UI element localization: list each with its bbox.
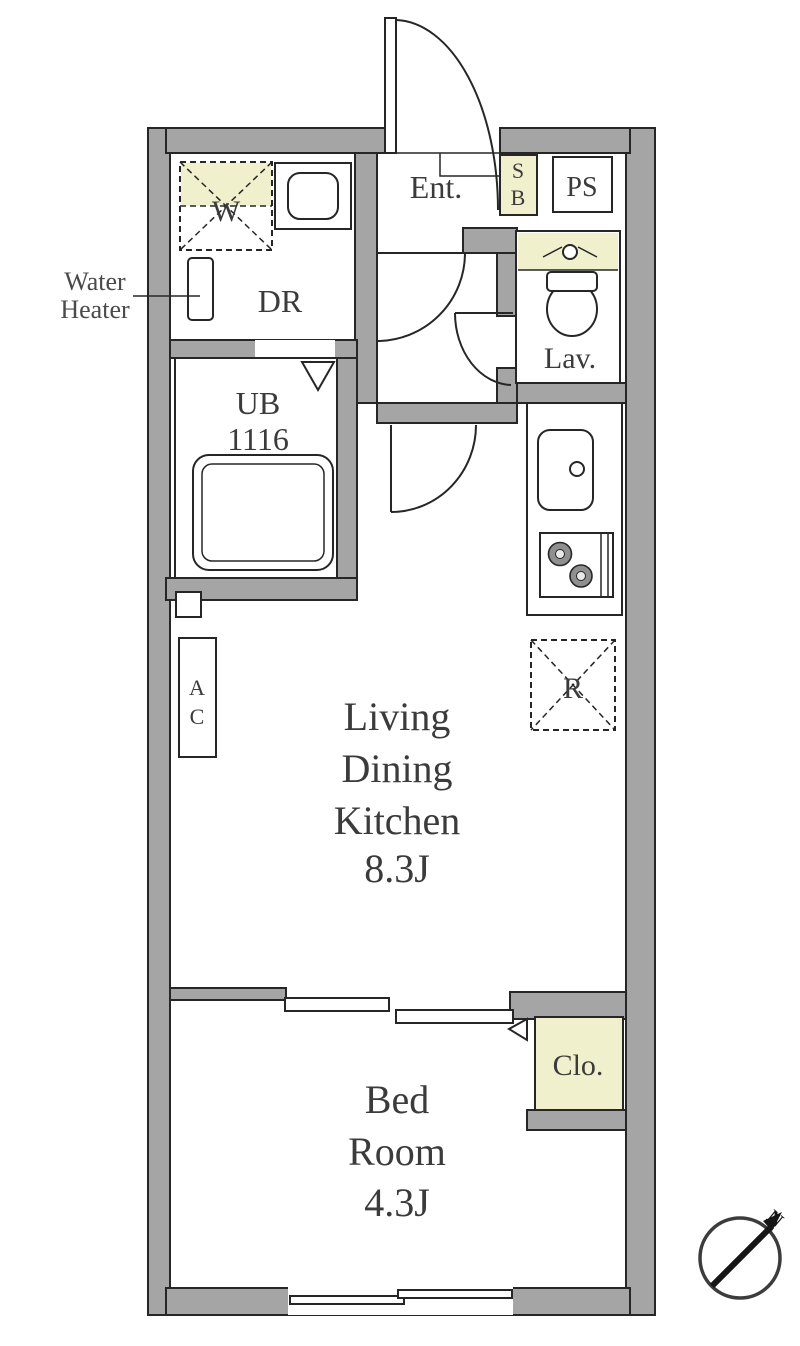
closet-top-wall [510, 992, 626, 1019]
floor-plan-drawing: Ent. S B PS W DR Water Heater UB 1116 [0, 0, 800, 1346]
closet-bottom-wall [527, 1110, 626, 1130]
ldk-door [391, 425, 476, 512]
water-heater-unit [188, 258, 213, 320]
washing-machine-label: W [212, 195, 241, 228]
ldk-label-line2: Dining [341, 746, 452, 791]
lav-wall-upper [497, 253, 517, 316]
compass-needle [712, 1226, 772, 1286]
top-wall-right [500, 128, 630, 153]
partition-wall-stub [170, 988, 286, 1000]
ldk-door-swing-arc [391, 425, 476, 512]
water-heater-annotation: Water Heater [60, 267, 200, 324]
meter-box [176, 592, 201, 617]
shoe-box-label-line2: B [511, 185, 526, 210]
closet: Clo. [509, 1017, 623, 1110]
pipe-space: PS [553, 157, 612, 212]
shoe-box: S B [500, 155, 537, 215]
bedroom-label-line2: Room [348, 1129, 446, 1174]
shoe-box-label-line1: S [512, 158, 524, 183]
kitchen-top-wall [517, 383, 626, 403]
sliding-partition [285, 998, 513, 1023]
ldk-label-line1: Living [344, 694, 451, 739]
window-pane-left [290, 1296, 404, 1304]
ub-door-opening [255, 340, 335, 358]
unit-bath: UB 1116 [175, 340, 337, 578]
sliding-panel-2 [396, 1010, 513, 1023]
kitchen-faucet [570, 462, 584, 476]
bedroom-window [288, 1286, 513, 1315]
floor-plan-page: Ent. S B PS W DR Water Heater UB 1116 [0, 0, 800, 1346]
water-heater-note-line2: Heater [60, 295, 130, 324]
right-wall [626, 128, 655, 1315]
dressing-room-label: DR [258, 283, 303, 319]
entrance-door-leaf [385, 18, 396, 153]
refrigerator-label: R [563, 672, 583, 705]
stove-burner-1-center [556, 550, 565, 559]
water-heater-note-line1: Water [64, 267, 126, 296]
window-pane-right [398, 1290, 512, 1298]
compass: N [700, 1206, 788, 1298]
toilet-tank [547, 272, 597, 291]
entrance-label: Ent. [410, 169, 462, 205]
unit-bath-label-line1: UB [236, 385, 280, 421]
refrigerator-space: R [531, 640, 615, 730]
hall-left-wall [355, 153, 377, 403]
left-wall [148, 128, 170, 1315]
ldk-label-line3: Kitchen [334, 798, 461, 843]
unit-bath-label-line2: 1116 [227, 421, 289, 457]
sliding-panel-1 [285, 998, 389, 1011]
kitchen [527, 403, 622, 615]
lavatory: Lav. [516, 231, 620, 383]
bedroom-label-line1: Bed [365, 1077, 429, 1122]
ent-hall-wall [463, 228, 517, 253]
washing-machine: W [180, 162, 272, 250]
pipe-space-label: PS [566, 172, 597, 203]
living-dining-kitchen-room: Living Dining Kitchen 8.3J [334, 694, 461, 891]
closet-label: Clo. [553, 1049, 604, 1082]
laundry-pan [275, 163, 351, 229]
air-conditioner-label-line2: C [190, 704, 205, 729]
dressing-room: DR [188, 258, 303, 320]
laundry-pan-inner [288, 173, 338, 219]
lavatory-faucet [563, 245, 577, 259]
top-wall-left [166, 128, 385, 153]
hall-ldk-lintel [377, 403, 517, 423]
air-conditioner: A C [179, 638, 216, 757]
ldk-size-label: 8.3J [364, 846, 430, 891]
bathtub-outline [193, 455, 333, 570]
ub-right-wall [337, 358, 357, 578]
air-conditioner-label-line1: A [189, 675, 205, 700]
stove-burner-2-center [577, 572, 586, 581]
hall-door [377, 253, 465, 341]
bed-room: Bed Room 4.3J [348, 1077, 446, 1225]
hall-door-swing-arc [377, 253, 465, 341]
lavatory-label: Lav. [544, 342, 596, 375]
bedroom-size-label: 4.3J [364, 1180, 430, 1225]
stove-outline [540, 533, 613, 597]
